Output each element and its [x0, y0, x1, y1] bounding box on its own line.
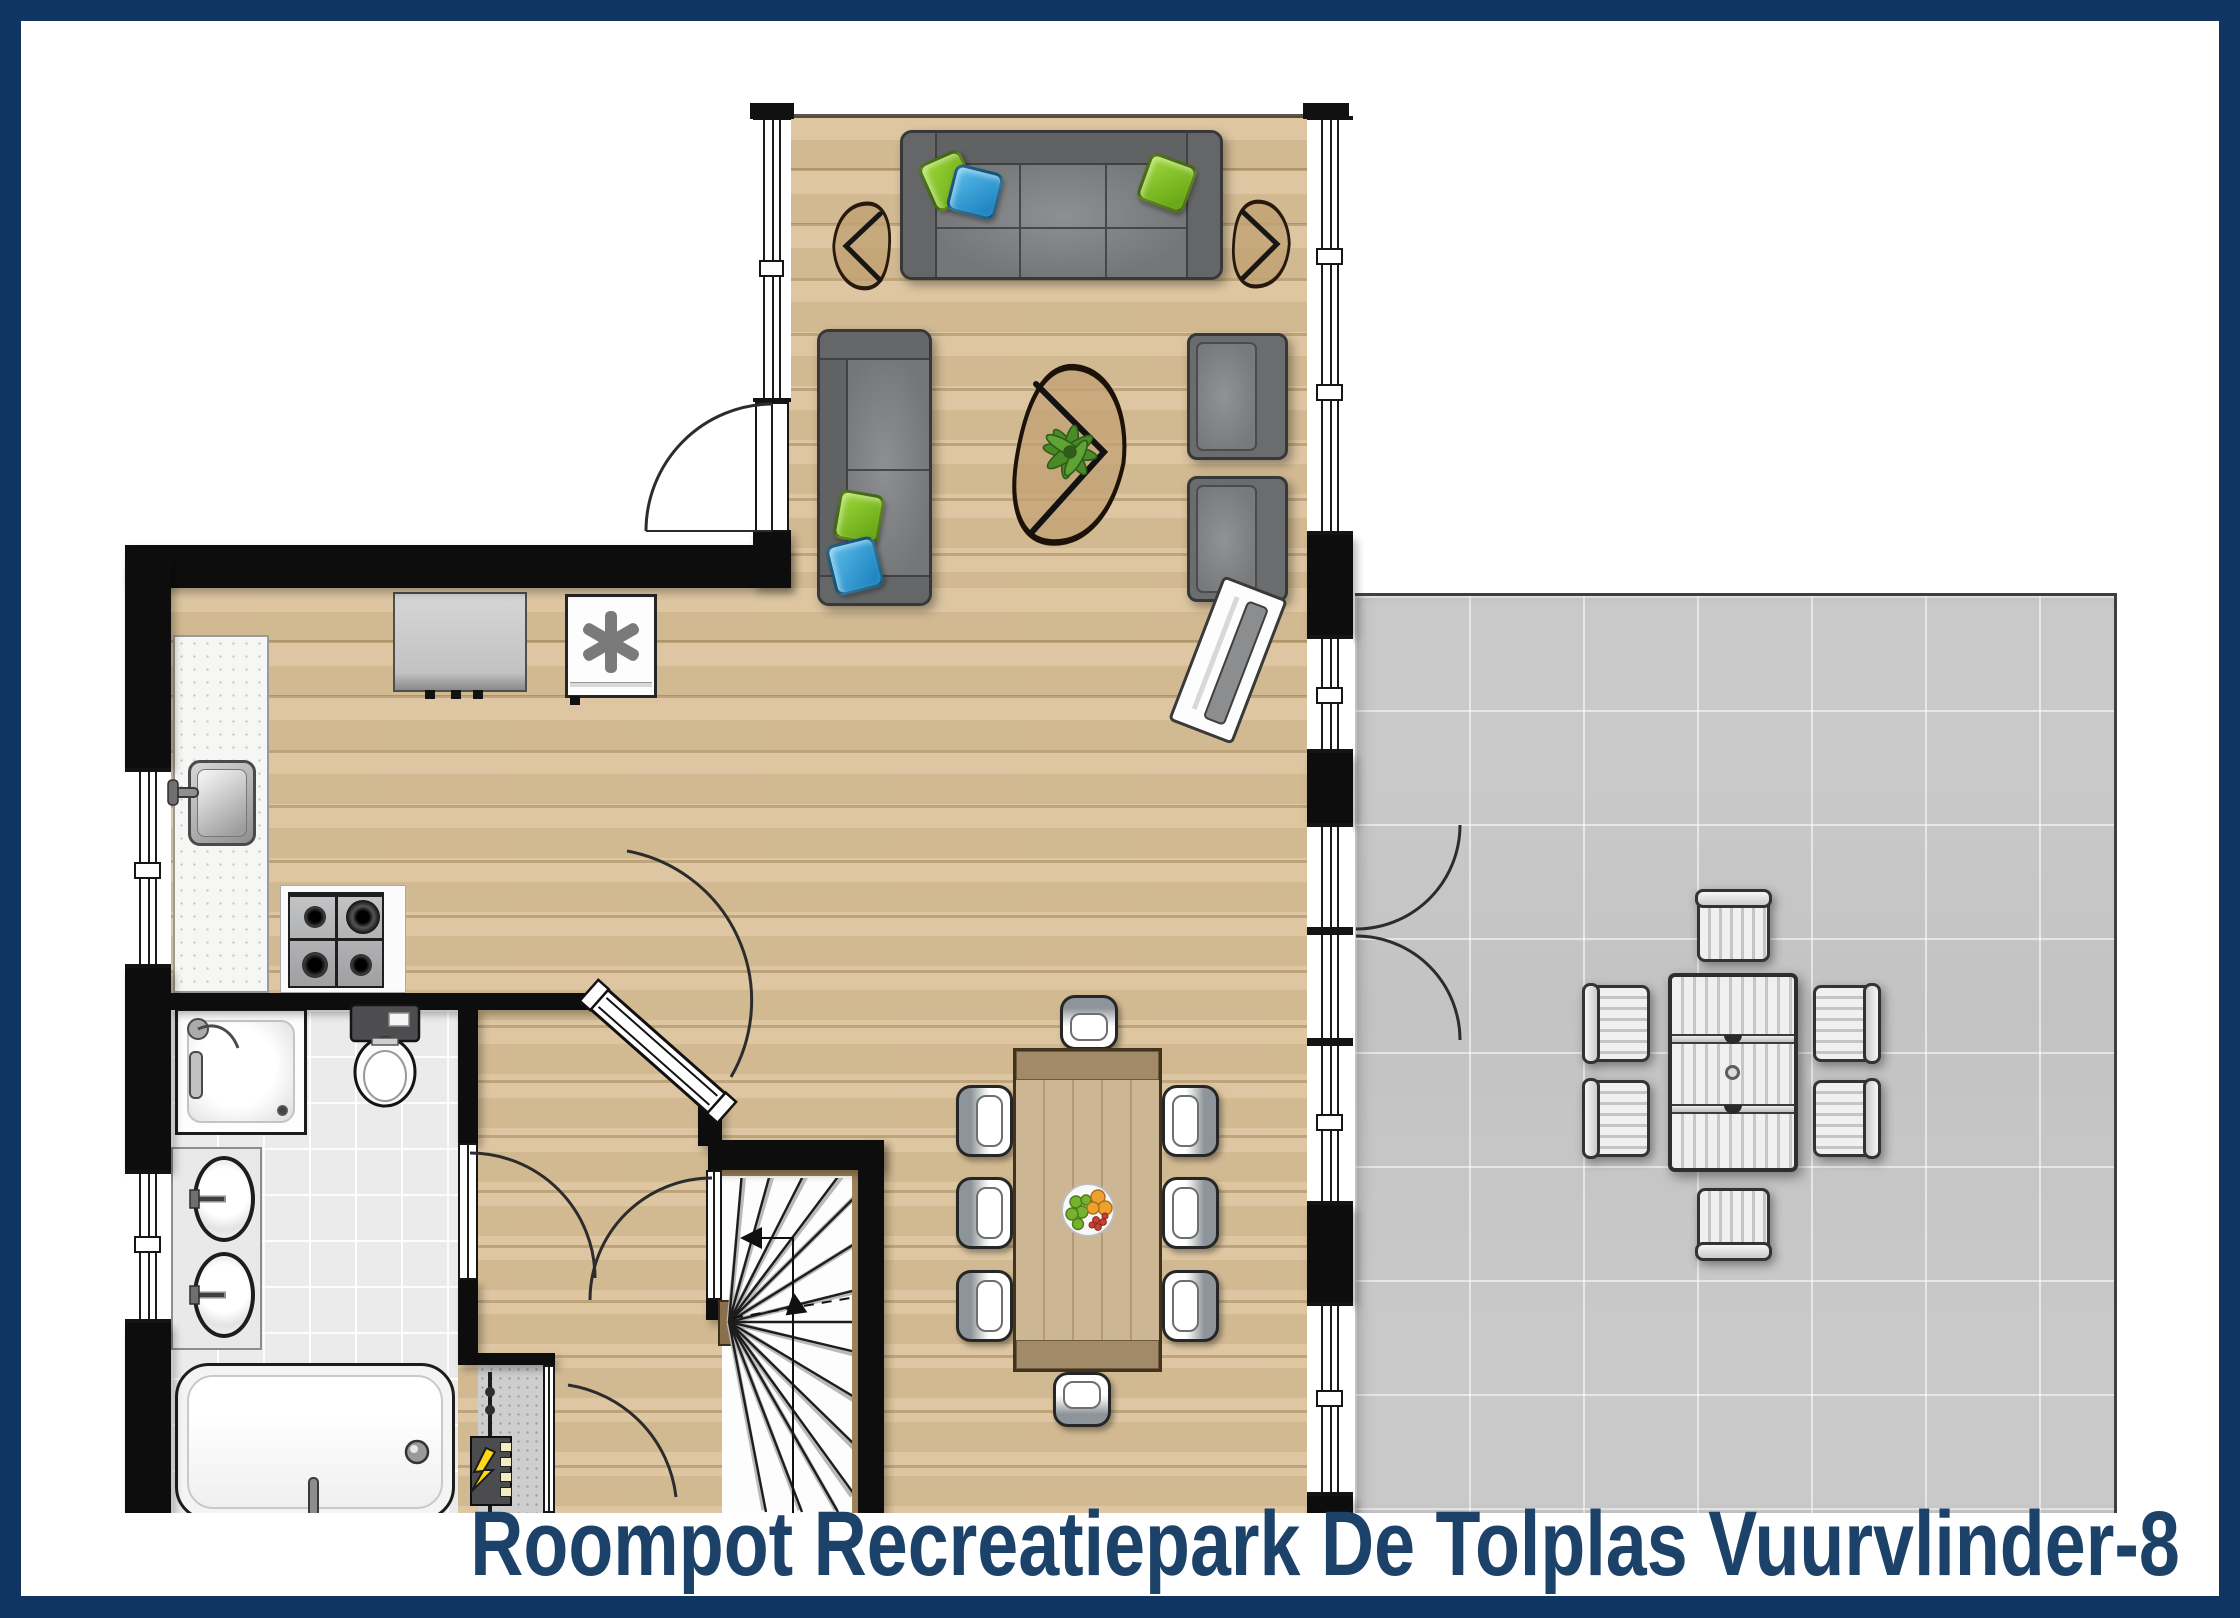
terrace-chair: [1813, 985, 1880, 1062]
window-sill: [134, 1236, 161, 1253]
dining-chair: [956, 1085, 1013, 1157]
fuse: [500, 1472, 512, 1482]
chair-backrest: [1582, 1078, 1600, 1159]
fuse: [500, 1457, 512, 1467]
shower: [175, 1008, 307, 1135]
terrace-chair: [1813, 1080, 1880, 1157]
fuse: [500, 1442, 512, 1452]
washbasin: [193, 1156, 255, 1242]
window-cap-left: [750, 103, 794, 119]
door-leaf-line: [713, 1172, 715, 1298]
stairs-door-jamb: [706, 1170, 722, 1300]
dining-chair: [1162, 1270, 1219, 1342]
chair-backrest: [1863, 1078, 1881, 1159]
burner: [302, 952, 328, 978]
door-leaf-line: [467, 1145, 469, 1278]
table-rail: [1672, 1104, 1794, 1114]
bathtub: [175, 1363, 455, 1521]
burner: [350, 954, 372, 976]
terrace-chair: [1583, 985, 1650, 1062]
table-end-cap: [1016, 1340, 1159, 1369]
window-sill: [1316, 1390, 1343, 1407]
unit-foot: [570, 696, 580, 705]
chair-seat: [1070, 1013, 1108, 1041]
right-wall-seg2: [1307, 753, 1353, 823]
door-glazing: [1321, 935, 1339, 1038]
bathroom-right-wall-upper: [458, 1008, 478, 1143]
table-end-cap: [1016, 1051, 1159, 1080]
dining-chair: [1162, 1177, 1219, 1249]
dining-chair: [1060, 995, 1118, 1050]
bathroom-window: [125, 1170, 171, 1323]
left-wall-middle: [125, 968, 171, 1170]
right-window-1: [1307, 116, 1353, 535]
bathtub-inner: [187, 1375, 443, 1509]
left-wall-upper: [125, 560, 171, 768]
sofa-armrest: [820, 332, 929, 360]
terrace-chair: [1697, 1188, 1770, 1260]
kitchen-window: [125, 768, 171, 968]
door-leaf-line: [548, 1367, 550, 1511]
terrace-french-door-bottom-leaf: [1307, 931, 1353, 1042]
terrace-table: [1668, 973, 1798, 1172]
chair-seat: [976, 1187, 1003, 1239]
ventilation-fan-icon: [578, 609, 644, 675]
living-left-door-jamb: [755, 402, 789, 532]
door-leaf-line: [771, 404, 773, 530]
chair-backrest: [1863, 983, 1881, 1064]
chair-seat: [1172, 1095, 1199, 1147]
sofa-armrest: [903, 133, 937, 277]
chair-cushion: [1196, 342, 1257, 451]
frame-border-top: [0, 0, 2240, 21]
frame-border-right: [2219, 0, 2240, 1618]
kitchen-sink: [188, 760, 256, 846]
terrace-french-door-top-leaf: [1307, 823, 1353, 931]
armchair: [1187, 476, 1288, 602]
chair-backrest: [1695, 1242, 1772, 1261]
burner: [304, 906, 326, 928]
chair-seat: [1063, 1381, 1101, 1409]
sink-basin: [197, 769, 247, 837]
chair-seat: [976, 1280, 1003, 1332]
right-window-3: [1307, 1042, 1353, 1205]
washbasin: [193, 1252, 255, 1338]
chair-seat: [1172, 1187, 1199, 1239]
window-cap-right: [1303, 103, 1349, 119]
hall-corner-wall: [698, 1090, 722, 1146]
parasol-hole: [1725, 1065, 1740, 1080]
dining-chair: [1162, 1085, 1219, 1157]
terrace-chair: [1697, 890, 1770, 962]
stair-newel-post: [718, 1300, 735, 1346]
window-sill: [134, 862, 161, 879]
living-room-top-edge: [788, 114, 1307, 118]
right-window-2: [1307, 635, 1353, 753]
kitchen-top-wall: [125, 545, 790, 588]
door-glazing: [1321, 827, 1339, 927]
living-left-window: [753, 116, 791, 402]
right-wall-seg3: [1307, 1205, 1353, 1302]
floor-plan: Roompot Recreatiepark De Tolplas Vuurvli…: [0, 0, 2240, 1618]
bathroom-top-wall: [171, 993, 600, 1010]
cabinet-foot: [425, 690, 435, 699]
dining-chair: [956, 1177, 1013, 1249]
sofa-armrest: [1186, 133, 1220, 277]
shower-drain: [277, 1105, 288, 1116]
meter-cupboard-top-wall: [478, 1353, 555, 1365]
window-glazing: [763, 120, 781, 398]
dining-chair: [1053, 1372, 1111, 1427]
stairwell-right-wall: [858, 1140, 884, 1513]
bathroom-door-jamb: [458, 1143, 478, 1280]
left-wall-lower: [125, 1323, 171, 1513]
chair-backrest: [1695, 889, 1772, 908]
bathroom-right-wall-lower: [458, 1280, 478, 1365]
right-wall-seg1: [1307, 535, 1353, 635]
dining-chair: [956, 1270, 1013, 1342]
window-sill: [1316, 687, 1343, 704]
frame-border-bottom: [0, 1596, 2240, 1618]
window-sill: [1316, 1114, 1343, 1131]
cabinet-foot: [451, 690, 461, 699]
chair-seat: [976, 1095, 1003, 1147]
armchair: [1187, 333, 1288, 460]
right-window-4: [1307, 1302, 1353, 1496]
chair-backrest: [1582, 983, 1600, 1064]
terrace-chair: [1583, 1080, 1650, 1157]
cabinet-foot: [473, 690, 483, 699]
window-sill: [759, 260, 784, 277]
window-glazing: [1321, 120, 1339, 531]
living-left-wall-stub: [753, 530, 791, 588]
kitchen-cabinet: [393, 592, 527, 692]
table-rail: [1672, 1034, 1794, 1044]
gas-stove: [288, 892, 384, 988]
frame-border-left: [0, 0, 21, 1618]
window-sill: [1316, 384, 1343, 401]
unit-vent-band: [570, 682, 652, 687]
chair-cushion: [1196, 485, 1257, 593]
ventilation-unit: [565, 594, 657, 698]
window-sill: [1316, 248, 1343, 265]
stairwell: [722, 1170, 858, 1513]
chair-seat: [1172, 1280, 1199, 1332]
burner: [346, 900, 380, 934]
page-title: Roompot Recreatiepark De Tolplas Vuurvli…: [609, 1494, 2041, 1594]
dining-table: [1013, 1048, 1162, 1372]
